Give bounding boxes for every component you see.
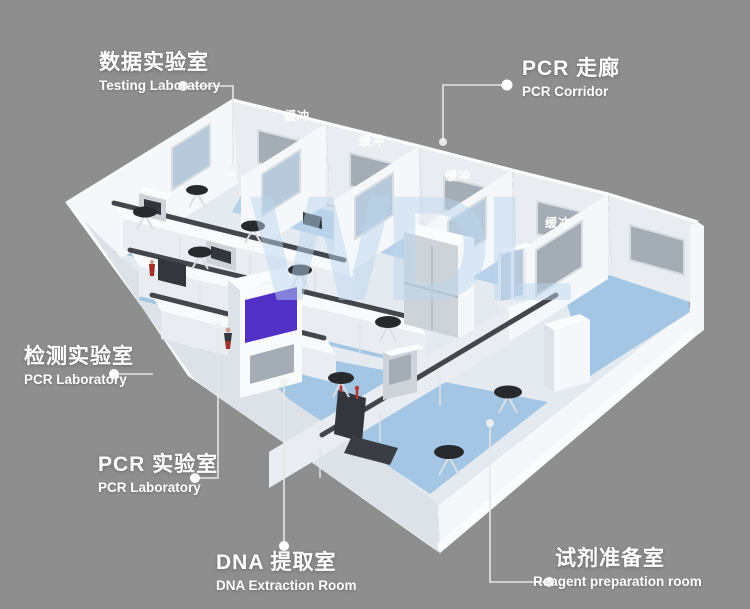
callout-inspection-lab: 检测实验室 PCR Laboratory: [24, 346, 134, 387]
buffer-label-4: 缓冲: [545, 215, 571, 230]
callout-testing-lab-zh: 数据实验室: [99, 52, 220, 74]
callout-dna-extraction-zh: DNA 提取室: [216, 552, 357, 574]
callout-reagent-prep-zh: 试剂准备室: [555, 548, 702, 570]
callout-reagent-prep-en: Reagent preparation room: [533, 575, 702, 589]
callout-dna-extraction: DNA 提取室 DNA Extraction Room: [216, 552, 357, 593]
callout-reagent-prep: 试剂准备室 Reagent preparation room: [533, 548, 702, 589]
callout-dna-extraction-en: DNA Extraction Room: [216, 579, 357, 593]
buffer-label-2: 缓冲: [359, 133, 385, 148]
right-corner-wall: [690, 222, 704, 336]
fridge-cabinet: [404, 225, 474, 338]
callout-pcr-corridor-en: PCR Corridor: [522, 85, 620, 99]
callout-pcr-lab-en: PCR Laboratory: [98, 481, 218, 495]
pegboard-rack: [334, 390, 366, 442]
callout-testing-lab: 数据实验室 Testing Laboratory: [99, 52, 220, 93]
callout-inspection-lab-zh: 检测实验室: [24, 346, 134, 368]
storage-column: [544, 314, 590, 392]
buffer-label-1: 缓冲: [284, 108, 310, 123]
callout-testing-lab-en: Testing Laboratory: [99, 79, 220, 93]
buffer-label-3: 缓冲: [445, 168, 471, 183]
callout-inspection-lab-en: PCR Laboratory: [24, 373, 134, 387]
figurine: [149, 260, 155, 276]
callout-pcr-lab-zh: PCR 实验室: [98, 454, 218, 476]
callout-pcr-lab: PCR 实验室 PCR Laboratory: [98, 454, 218, 495]
biosafety-cabinet: [228, 266, 302, 398]
leader-pcr-corridor: [439, 80, 513, 147]
callout-pcr-corridor-zh: PCR 走廊: [522, 58, 620, 80]
lab-floorplan-figure: 缓冲 缓冲 缓冲 缓冲: [0, 0, 750, 609]
callout-pcr-corridor: PCR 走廊 PCR Corridor: [522, 58, 620, 99]
